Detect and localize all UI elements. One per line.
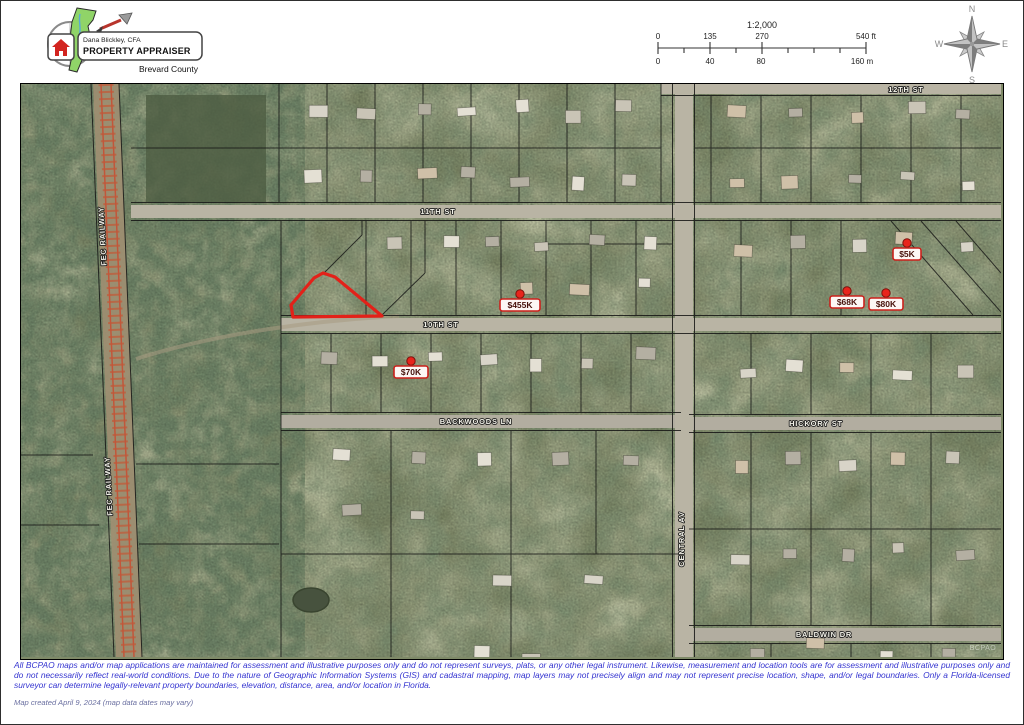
house (461, 166, 476, 178)
scale-m-3: 160 m (851, 57, 874, 66)
house (569, 284, 589, 296)
house (853, 239, 867, 252)
house (958, 365, 974, 378)
house (534, 242, 548, 252)
street-label: HICKORY ST (789, 419, 843, 428)
house (638, 278, 650, 287)
house (356, 108, 375, 120)
street-label: CENTRAL AV (677, 511, 686, 566)
map-canvas[interactable]: BCPAO 12TH ST11TH ST10TH STBACKWOODS LNH… (20, 83, 1004, 660)
house (615, 100, 631, 112)
compass-n: N (969, 4, 976, 14)
map-created-date: Map created April 9, 2024 (map data date… (14, 698, 193, 707)
house (956, 550, 975, 561)
house (735, 460, 748, 473)
marker-dot-icon (903, 239, 911, 247)
street-label: BACKWOODS LN (440, 417, 513, 426)
house (510, 177, 530, 188)
street-label: BALDWIN DR (796, 630, 852, 639)
house (962, 181, 975, 190)
house (372, 356, 388, 367)
street-label: 10TH ST (423, 320, 459, 329)
house (783, 549, 797, 559)
house (956, 109, 971, 119)
house (891, 452, 906, 465)
house (622, 174, 636, 186)
house (477, 452, 491, 466)
house (565, 110, 580, 123)
scale-m-0: 0 (656, 57, 661, 66)
house (480, 354, 498, 366)
house (790, 235, 805, 249)
house (581, 358, 593, 369)
bcpao-map-page: Dana Blickley, CFA PROPERTY APPRAISER Br… (0, 0, 1024, 725)
scale-ft-3: 540 ft (856, 32, 877, 41)
street-label: 12TH ST (888, 85, 924, 94)
house (892, 543, 904, 553)
house (333, 448, 351, 460)
scale-ticks (658, 42, 866, 54)
compass-e: E (1002, 39, 1008, 49)
house (730, 179, 745, 188)
house (411, 511, 425, 520)
marker-value: $5K (899, 249, 915, 259)
house (493, 575, 512, 586)
house (516, 99, 529, 113)
house (360, 170, 372, 182)
house (457, 107, 476, 117)
house (740, 368, 756, 378)
house (387, 237, 402, 249)
house (418, 104, 431, 115)
house (417, 167, 437, 179)
house (842, 549, 855, 562)
house (485, 236, 499, 246)
house (880, 651, 893, 657)
house (522, 654, 540, 657)
house (342, 504, 362, 516)
county-name: Brevard County (139, 64, 199, 74)
marker-value: $80K (876, 299, 897, 309)
appraiser-name: Dana Blickley, CFA (83, 37, 141, 44)
disclaimer-text: All BCPAO maps and/or map applications a… (14, 661, 1010, 690)
house (750, 649, 764, 657)
house (892, 370, 912, 381)
house (589, 234, 605, 245)
scale-m-1: 40 (706, 57, 715, 66)
house (789, 108, 803, 117)
compass-star-icon (944, 16, 1000, 72)
house (530, 359, 542, 372)
house (584, 575, 603, 585)
marker-dot-icon (882, 289, 890, 297)
marker-value: $68K (837, 297, 858, 307)
house (942, 648, 955, 657)
house (731, 555, 750, 565)
house (309, 105, 328, 117)
compass-w: W (935, 39, 944, 49)
scale-bar: 1:2,000 0 135 270 540 ft 0 40 80 160 m (640, 10, 890, 70)
marker-dot-icon (407, 357, 415, 365)
house (321, 352, 338, 365)
scale-ft-1: 135 (703, 32, 717, 41)
house (908, 101, 926, 113)
appraiser-title: PROPERTY APPRAISER (83, 46, 191, 56)
scale-ft-2: 270 (755, 32, 769, 41)
house (444, 236, 460, 248)
house (840, 363, 854, 373)
house (900, 171, 915, 180)
house (636, 347, 656, 360)
scale-m-2: 80 (757, 57, 766, 66)
compass-rose: N E S W (932, 2, 1012, 86)
house (623, 455, 639, 465)
house (428, 352, 442, 361)
house (727, 105, 746, 118)
house (839, 460, 857, 472)
house (785, 359, 803, 372)
house (806, 637, 824, 648)
house (849, 175, 862, 184)
house (412, 451, 426, 463)
house (572, 176, 585, 191)
street-label: 11TH ST (420, 207, 455, 216)
house (781, 175, 798, 189)
house (946, 451, 960, 464)
house (785, 451, 801, 465)
marker-value: $70K (401, 367, 422, 377)
pond (293, 588, 329, 612)
pencil-icon (96, 13, 132, 33)
house (552, 452, 569, 466)
house (304, 169, 322, 183)
scale-ratio: 1:2,000 (747, 20, 777, 30)
house (961, 242, 974, 252)
marker-dot-icon (516, 290, 524, 298)
house (474, 646, 490, 657)
marker-dot-icon (843, 287, 851, 295)
scale-ft-0: 0 (656, 32, 661, 41)
house (644, 236, 657, 250)
bcpao-logo: Dana Blickley, CFA PROPERTY APPRAISER Br… (20, 2, 220, 82)
house (734, 245, 753, 258)
house (851, 112, 863, 123)
map-watermark: BCPAO (970, 645, 997, 652)
marker-value: $455K (507, 300, 533, 310)
